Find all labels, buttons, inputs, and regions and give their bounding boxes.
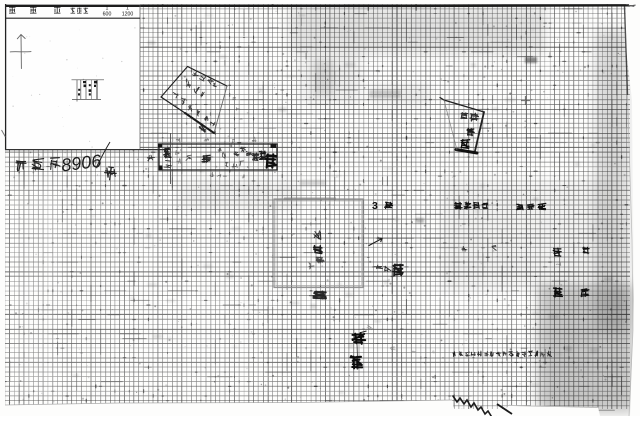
svg-text:1200: 1200 — [122, 12, 134, 18]
svg-text:3: 3 — [372, 200, 378, 212]
svg-text:600: 600 — [103, 12, 112, 18]
